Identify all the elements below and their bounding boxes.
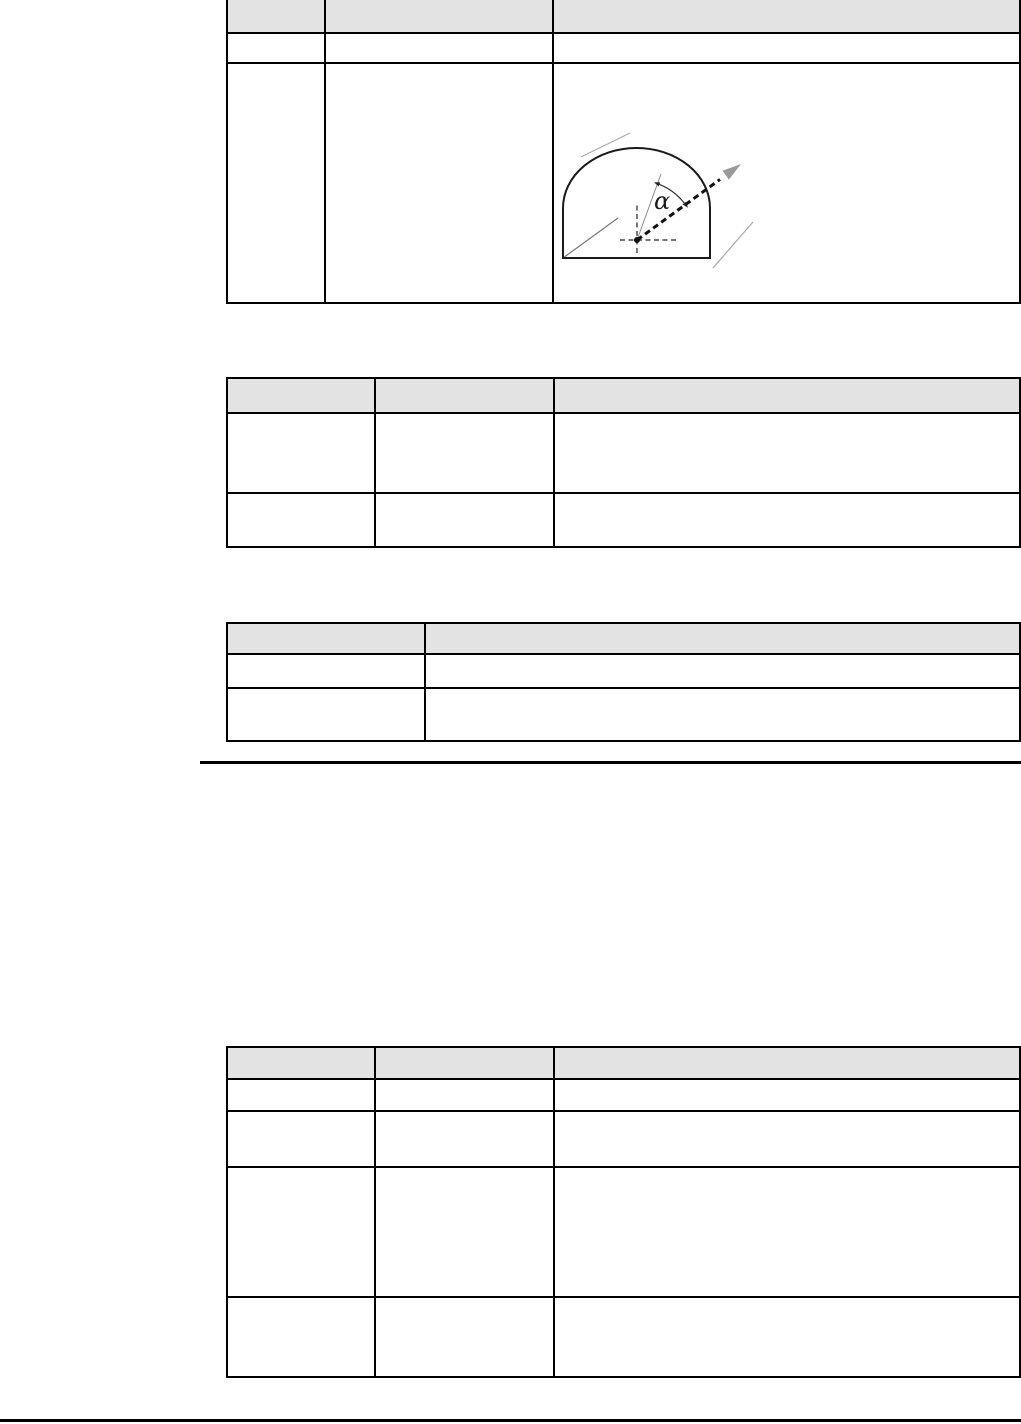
table-4-header-cell: [375, 1047, 554, 1079]
table-2-cell: [554, 493, 1020, 547]
table-1-cell: [227, 63, 325, 303]
table-3-cell: [425, 688, 1020, 741]
table-4-cell: [554, 1111, 1020, 1167]
table-1-cell: [553, 33, 1020, 63]
direction-arrow-head: [723, 164, 742, 180]
table-4-cell: [227, 1167, 375, 1297]
table-2-cell: [375, 493, 554, 547]
table-3-header-cell: [227, 623, 425, 654]
table-1-header-cell: [553, 0, 1020, 33]
table-2: [226, 377, 1021, 548]
table-2-header-cell: [227, 378, 375, 413]
center-point-dot: [634, 237, 640, 243]
table-2-cell: [227, 413, 375, 493]
table-2-cell: [227, 493, 375, 547]
table-3-cell: [425, 654, 1020, 688]
table-2-cell: [554, 413, 1020, 493]
table-4-cell: [375, 1111, 554, 1167]
table-1-cell: [325, 33, 553, 63]
table-4: [226, 1046, 1021, 1378]
table-2-header-cell: [375, 378, 554, 413]
table-4-cell: [227, 1297, 375, 1377]
document-page: α: [0, 0, 1021, 1424]
table-2-header-cell: [554, 378, 1020, 413]
table-3: [226, 622, 1021, 742]
table-4-cell: [375, 1297, 554, 1377]
table-4-cell: [554, 1297, 1020, 1377]
table-1-header-cell: [325, 0, 553, 33]
section-divider-rule: [200, 761, 1021, 764]
page-footer-rule: [0, 1419, 1021, 1422]
table-2-cell: [375, 413, 554, 493]
table-3-cell: [227, 654, 425, 688]
table-4-cell: [554, 1079, 1020, 1111]
table-4-header-cell: [554, 1047, 1020, 1079]
table-4-cell: [375, 1079, 554, 1111]
angle-alpha-label: α: [654, 187, 670, 215]
table-4-cell: [227, 1079, 375, 1111]
table-4-cell: [227, 1111, 375, 1167]
table-1-cell: [227, 33, 325, 63]
tunnel-profile-angle-diagram: α: [550, 125, 760, 275]
axis-stroke-bottom-right: [713, 222, 753, 268]
table-4-cell: [554, 1167, 1020, 1297]
axis-stroke-bottom-left: [563, 218, 618, 258]
table-1-header-cell: [227, 0, 325, 33]
direction-arrow-shaft: [637, 179, 720, 240]
table-4-cell: [375, 1167, 554, 1297]
table-1-cell: [325, 63, 553, 303]
table-4-header-cell: [227, 1047, 375, 1079]
table-3-header-cell: [425, 623, 1020, 654]
table-3-cell: [227, 688, 425, 741]
